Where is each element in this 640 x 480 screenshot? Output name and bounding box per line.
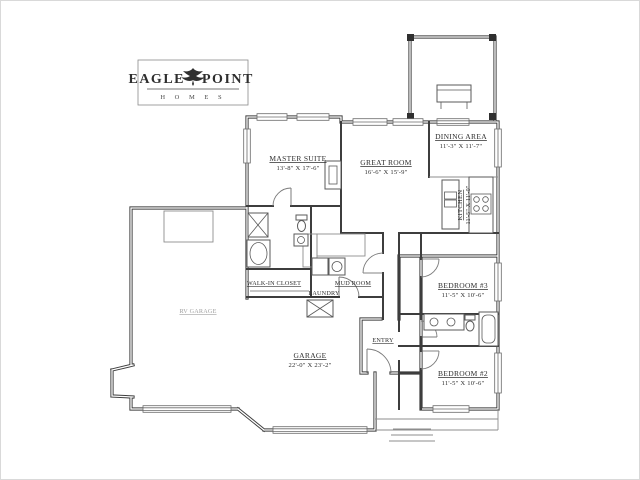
- garage-door-icon: [273, 427, 367, 434]
- label-walk-in-closet: WALK-IN CLOSET: [247, 280, 301, 287]
- logo-brand-right: POINT: [202, 72, 254, 87]
- floor-plan-drawing: EAGLE POINT H O M E S MASTER SUITE 13'-8…: [1, 1, 640, 480]
- window-icon: [495, 263, 502, 301]
- label-laundry: LAUNDRY: [308, 290, 340, 297]
- dims-great-room: 16'-6" X 15'-9": [365, 169, 408, 176]
- door-arc-icon: [363, 253, 383, 273]
- dims-kitchen: 11'-5" X 11'-0": [466, 185, 472, 224]
- main-stairs-run: [317, 234, 365, 256]
- garage-door-icon: [143, 406, 231, 413]
- label-entry: ENTRY: [372, 337, 394, 344]
- window-icon: [244, 129, 251, 163]
- patio-posts: [407, 34, 496, 120]
- window-icon: [495, 353, 502, 393]
- label-kitchen: KITCHEN: [457, 190, 464, 221]
- sink-icon: [294, 234, 308, 246]
- logo-brand-left: EAGLE: [128, 72, 185, 87]
- dims-master-suite: 13'-8" X 17'-6": [277, 165, 320, 172]
- garage-stairs: [164, 211, 213, 242]
- logo-sub-text: H O M E S: [160, 94, 225, 101]
- window-icon: [257, 114, 287, 121]
- shower-icon: [248, 213, 268, 237]
- window-icon: [393, 119, 423, 126]
- window-icon: [353, 119, 387, 126]
- door-arc-icon: [367, 349, 391, 373]
- porch-lines: [375, 409, 498, 441]
- door-arc-icon: [421, 351, 439, 369]
- bath2-vanity: [424, 314, 464, 330]
- bathtub-icon: [479, 312, 498, 346]
- label-mud-room: MUD ROOM: [335, 280, 371, 287]
- label-great-room: GREAT ROOM: [360, 158, 411, 167]
- window-icon: [433, 406, 469, 413]
- label-master-suite: MASTER SUITE: [269, 154, 326, 163]
- toilet-icon: [465, 315, 475, 331]
- dims-dining-area: 11'-3" X 11'-7": [440, 143, 483, 150]
- door-arc-icon: [421, 259, 439, 277]
- window-icon: [495, 129, 502, 167]
- door-arc-icon: [273, 188, 291, 206]
- fireplace-icon: [325, 161, 341, 189]
- washer-dryer-icon: [312, 258, 345, 275]
- furnace-icon: [307, 300, 333, 317]
- dims-bedroom-2: 11'-5" X 10'-6": [442, 380, 485, 387]
- label-bedroom-2: BEDROOM #2: [438, 369, 488, 378]
- floor-plan-page: EAGLE POINT H O M E S MASTER SUITE 13'-8…: [0, 0, 640, 480]
- label-rv-garage: RV GARAGE: [179, 308, 216, 315]
- bathtub-icon: [247, 240, 270, 267]
- dims-bedroom-3: 11'-5" X 10'-6": [442, 292, 485, 299]
- label-bedroom-3: BEDROOM #3: [438, 281, 488, 290]
- dims-garage: 22'-0" X 23'-2": [289, 362, 332, 369]
- logo: EAGLE POINT H O M E S: [128, 60, 253, 105]
- label-dining-area: DINING AREA: [435, 132, 487, 141]
- window-icon: [297, 114, 329, 121]
- toilet-icon: [296, 215, 307, 232]
- label-garage: GARAGE: [293, 351, 326, 360]
- patio-hearth-icon: [437, 85, 471, 109]
- sliding-door-icon: [437, 119, 469, 126]
